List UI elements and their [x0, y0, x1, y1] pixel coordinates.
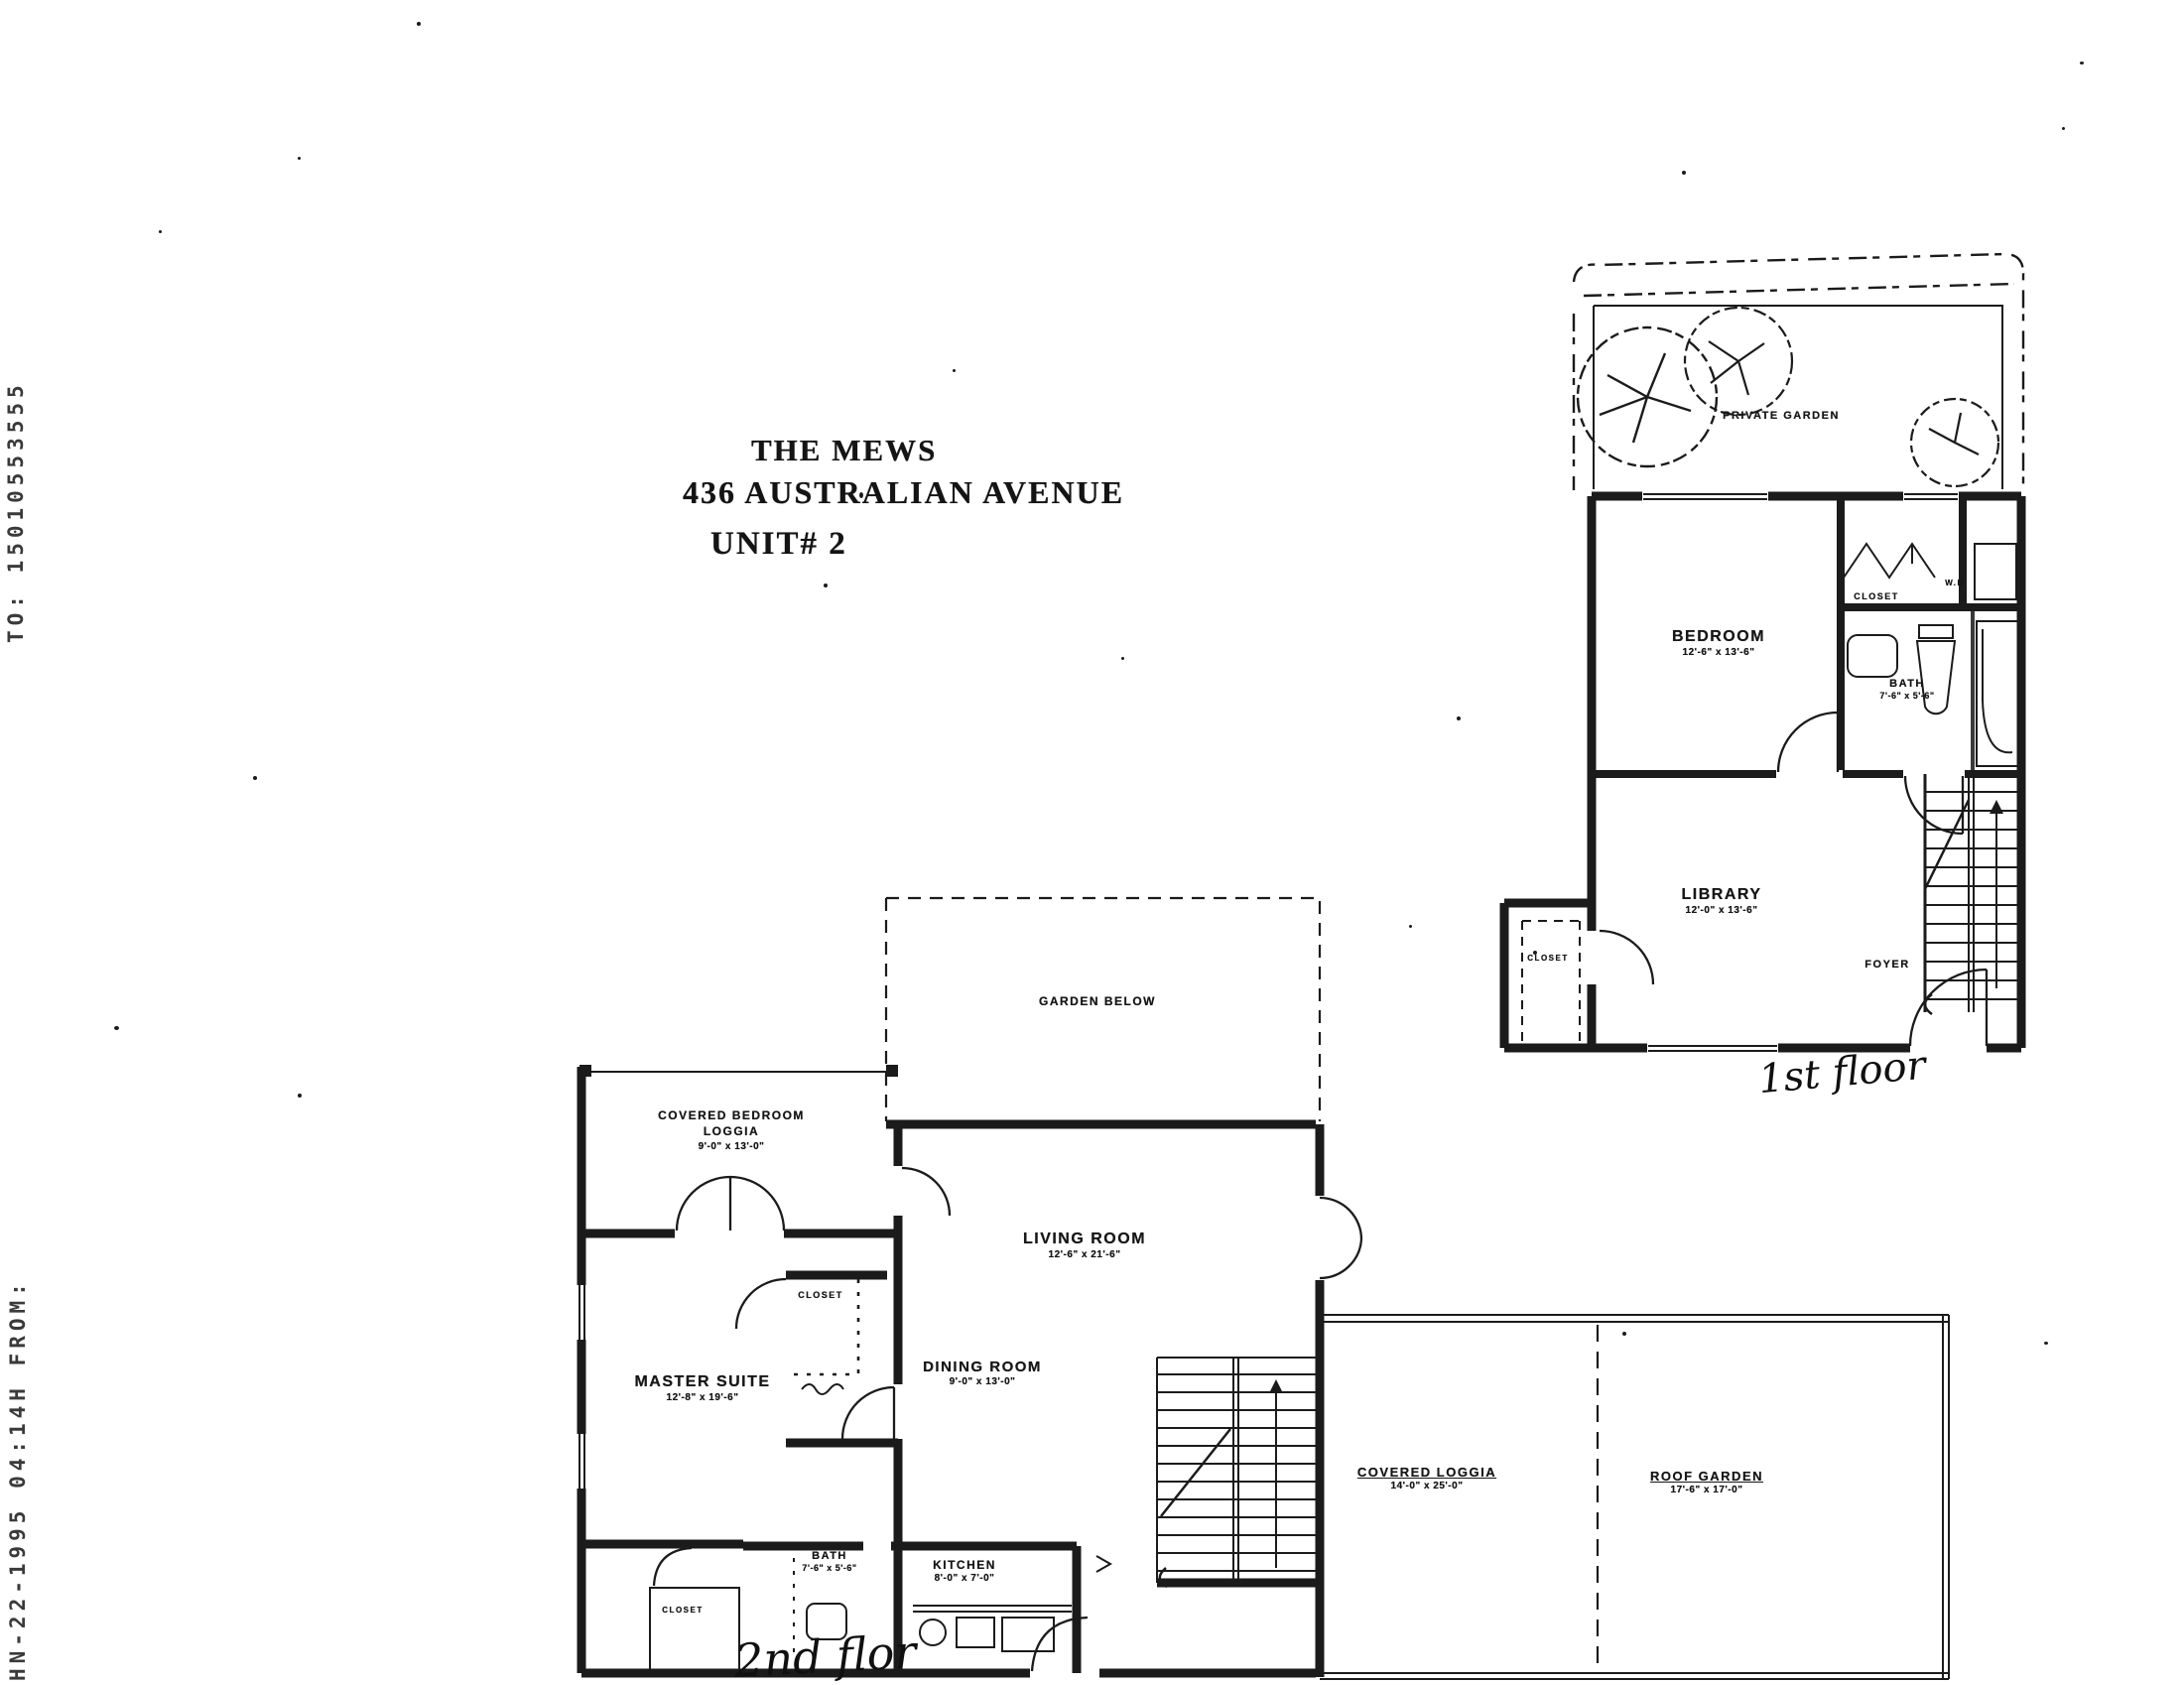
room-label-covered-loggia: COVERED LOGGIA 14'-0" x 25'-0"	[1357, 1465, 1496, 1491]
title-building: THE MEWS	[751, 433, 937, 468]
tree-icon	[1685, 308, 1792, 415]
tree-icon	[1578, 327, 1717, 466]
washer-dryer-unit	[1975, 544, 2016, 599]
lower-closet	[650, 1588, 739, 1673]
garden-below-dashed-outline	[886, 898, 1320, 1121]
stair-arrow-icon	[1269, 1379, 1283, 1393]
room-label-dining-room: DINING ROOM 9'-0" x 13'-0"	[923, 1359, 1042, 1387]
room-name: DINING ROOM	[923, 1359, 1042, 1375]
fax-header-top: TO: 15010553555	[4, 380, 28, 643]
room-name: CLOSET	[798, 1290, 843, 1300]
room-dim: 12'-8" x 19'-6"	[634, 1392, 770, 1403]
up-arrow-icon	[1990, 800, 2003, 814]
toilet-tank	[1919, 625, 1953, 638]
room-name: ROOF GARDEN	[1650, 1469, 1763, 1484]
room-name: CLOSET	[662, 1606, 703, 1615]
room-dim: 12'-6" x 13'-6"	[1672, 647, 1765, 658]
room-name: COVERED BEDROOM LOGGIA	[642, 1107, 821, 1139]
garden-hatch-border	[1574, 254, 2023, 492]
room-name: GARDEN BELOW	[1039, 994, 1156, 1008]
room-name: W.D	[1945, 579, 1965, 587]
staircase-down	[1157, 1358, 1316, 1587]
room-dim: 17'-6" x 17'-0"	[1650, 1485, 1763, 1495]
room-name: BATH	[1879, 678, 1934, 690]
room-dim: 12'-6" x 21'-6"	[1023, 1249, 1146, 1260]
room-label-kitchen: KITCHEN 8'-0" x 7'-0"	[933, 1558, 996, 1584]
sink-icon	[1848, 635, 1897, 677]
scanned-floorplan-sheet: TO: 15010553555 HN-22-1995 04:14H FROM: …	[0, 0, 2184, 1685]
room-dim: 9'-0" x 13'-0"	[642, 1140, 821, 1154]
kitchen-sink-icon	[920, 1620, 946, 1645]
room-dim: 8'-0" x 7'-0"	[933, 1573, 996, 1584]
illegible-annotation	[802, 1384, 843, 1394]
room-label-covered-bedroom-loggia: COVERED BEDROOM LOGGIA 9'-0" x 13'-0"	[642, 1107, 821, 1154]
room-label-washer-dryer: W.D	[1945, 579, 1965, 587]
room-label-closet-hall: CLOSET	[798, 1290, 843, 1300]
interior-walls	[1592, 496, 2021, 774]
title-unit: UNIT# 2	[710, 526, 847, 563]
stove-icon	[957, 1618, 994, 1647]
room-label-garden-below: GARDEN BELOW	[1039, 994, 1156, 1008]
room-label-closet: CLOSET	[1854, 591, 1899, 601]
chevron-mark	[1096, 1556, 1110, 1572]
room-dim: 7'-6" x 5'-6"	[1879, 691, 1934, 701]
room-name: PRIVATE GARDEN	[1723, 410, 1840, 422]
room-name: COVERED LOGGIA	[1357, 1465, 1496, 1480]
room-label-master-suite: MASTER SUITE 12'-8" x 19'-6"	[634, 1373, 770, 1403]
room-label-roof-garden: ROOF GARDEN 17'-6" x 17'-0"	[1650, 1469, 1763, 1495]
closet-rod-zigzag	[1844, 544, 1935, 578]
room-label-bedroom: BEDROOM 12'-6" x 13'-6"	[1672, 628, 1765, 658]
room-label-closet-lower: CLOSET	[662, 1606, 703, 1615]
handwritten-floor-note-2nd: 2nd flor	[733, 1624, 918, 1685]
room-label-living-room: LIVING ROOM 12'-6" x 21'-6"	[1023, 1231, 1146, 1260]
roof-terrace-parapet	[1320, 1315, 1949, 1679]
room-name: BATH	[802, 1550, 856, 1562]
floorplan-2nd-floor	[556, 873, 1965, 1685]
title-address: 436 AUSTRALIAN AVENUE	[683, 474, 1124, 511]
garden-inner-fence	[1594, 306, 2002, 489]
room-name: MASTER SUITE	[634, 1373, 770, 1391]
room-name: KITCHEN	[933, 1558, 996, 1572]
room-dim: 7'-6" x 5'-6"	[802, 1563, 856, 1573]
room-dim: 14'-0" x 25'-0"	[1357, 1481, 1496, 1491]
loggia-parapet	[579, 1065, 898, 1077]
room-label-private-garden: PRIVATE GARDEN	[1723, 410, 1840, 422]
room-dim: 9'-0" x 13'-0"	[923, 1376, 1042, 1387]
room-name: LIVING ROOM	[1023, 1231, 1146, 1248]
room-name: CLOSET	[1854, 591, 1899, 601]
kitchen-fixtures	[913, 1606, 1072, 1651]
room-name: BEDROOM	[1672, 628, 1765, 646]
tree-icon	[1911, 399, 1998, 486]
fax-header-bottom: HN-22-1995 04:14H FROM:	[6, 1278, 30, 1681]
room-label-bath-2: BATH 7'-6" x 5'-6"	[802, 1550, 856, 1573]
door-arc	[654, 1168, 1361, 1671]
room-label-bath-1: BATH 7'-6" x 5'-6"	[1879, 678, 1934, 701]
